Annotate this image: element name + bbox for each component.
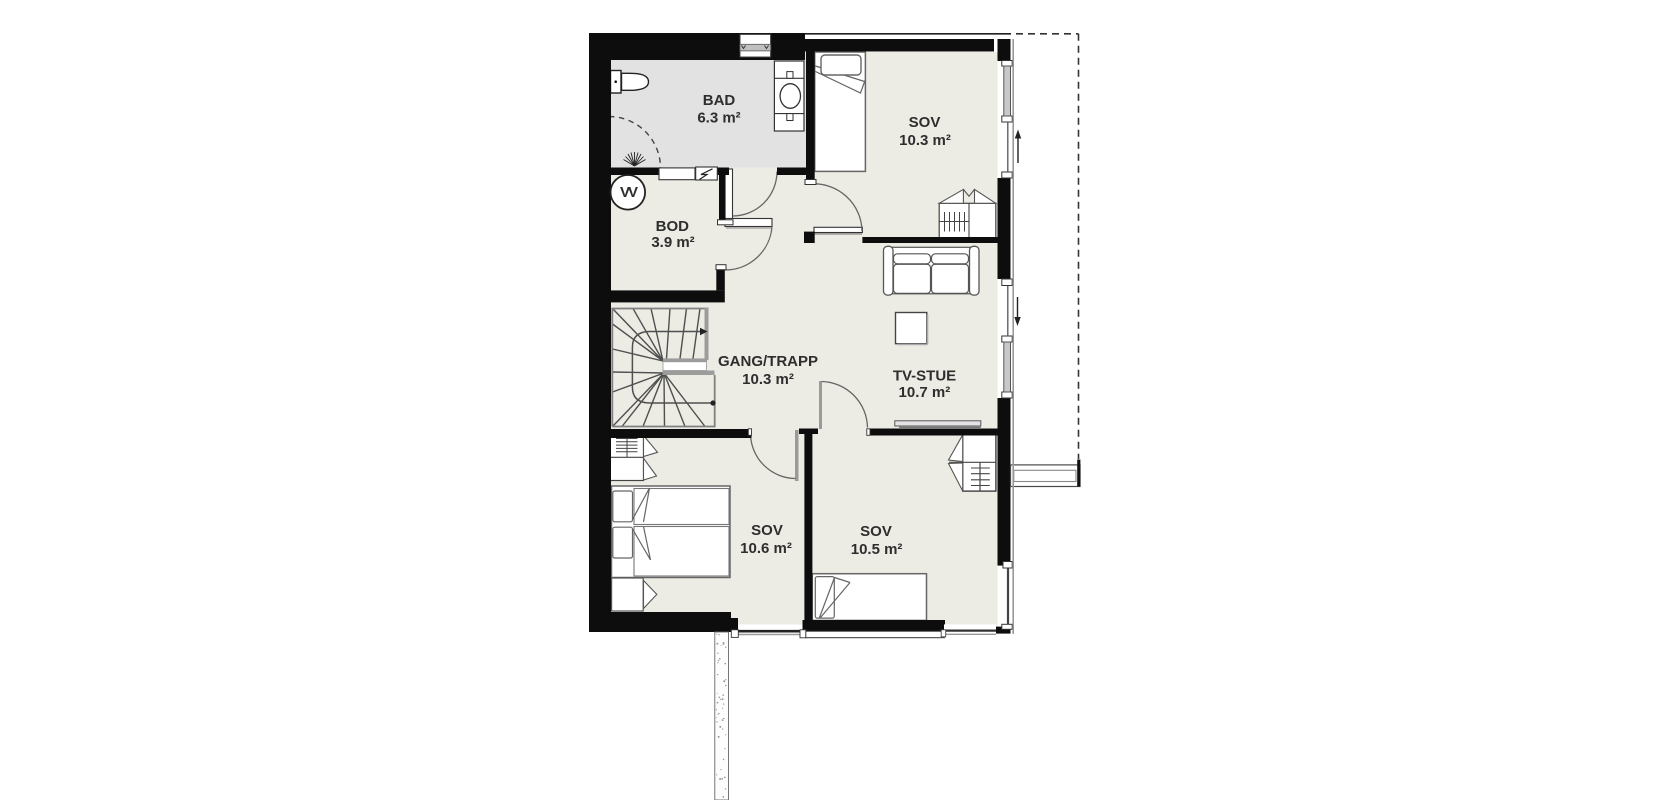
- svg-text:3.9 m²: 3.9 m²: [651, 234, 694, 251]
- svg-text:TV-STUE: TV-STUE: [893, 368, 956, 385]
- svg-text:SOV: SOV: [751, 522, 783, 539]
- svg-text:10.6 m²: 10.6 m²: [740, 540, 792, 557]
- svg-text:10.3 m²: 10.3 m²: [899, 132, 951, 149]
- svg-text:SOV: SOV: [909, 114, 941, 131]
- svg-text:6.3 m²: 6.3 m²: [697, 110, 740, 127]
- svg-text:10.3 m²: 10.3 m²: [742, 371, 794, 388]
- svg-text:BAD: BAD: [703, 92, 736, 109]
- svg-text:10.7 m²: 10.7 m²: [899, 384, 951, 401]
- svg-text:GANG/TRAPP: GANG/TRAPP: [718, 353, 818, 370]
- svg-text:SOV: SOV: [860, 523, 892, 540]
- svg-text:VV: VV: [620, 184, 638, 201]
- svg-text:BOD: BOD: [656, 218, 690, 235]
- svg-text:10.5 m²: 10.5 m²: [851, 541, 903, 558]
